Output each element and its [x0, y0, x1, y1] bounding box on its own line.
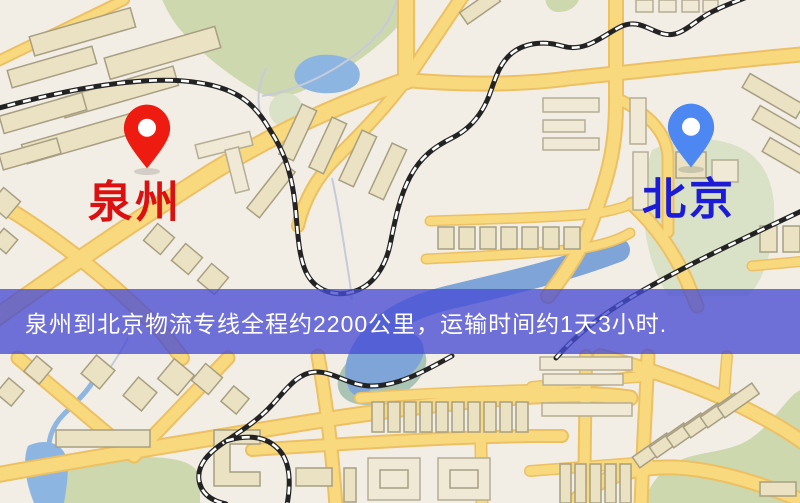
route-info-text: 泉州到北京物流专线全程约2200公里，运输时间约1天3小时.	[25, 305, 667, 339]
destination-pin-icon[interactable]	[666, 102, 716, 169]
origin-pin-hole	[138, 119, 156, 137]
route-info-banner: 泉州到北京物流专线全程约2200公里，运输时间约1天3小时.	[0, 289, 800, 354]
map-artwork	[0, 0, 800, 503]
destination-city-label: 北京	[642, 178, 736, 222]
map-screenshot: 泉州 北京 泉州到北京物流专线全程约2200公里，运输时间约1天3小时.	[0, 0, 800, 503]
destination-pin-hole	[682, 118, 700, 136]
origin-pin-icon[interactable]	[122, 103, 172, 170]
origin-city-label: 泉州	[88, 181, 182, 225]
